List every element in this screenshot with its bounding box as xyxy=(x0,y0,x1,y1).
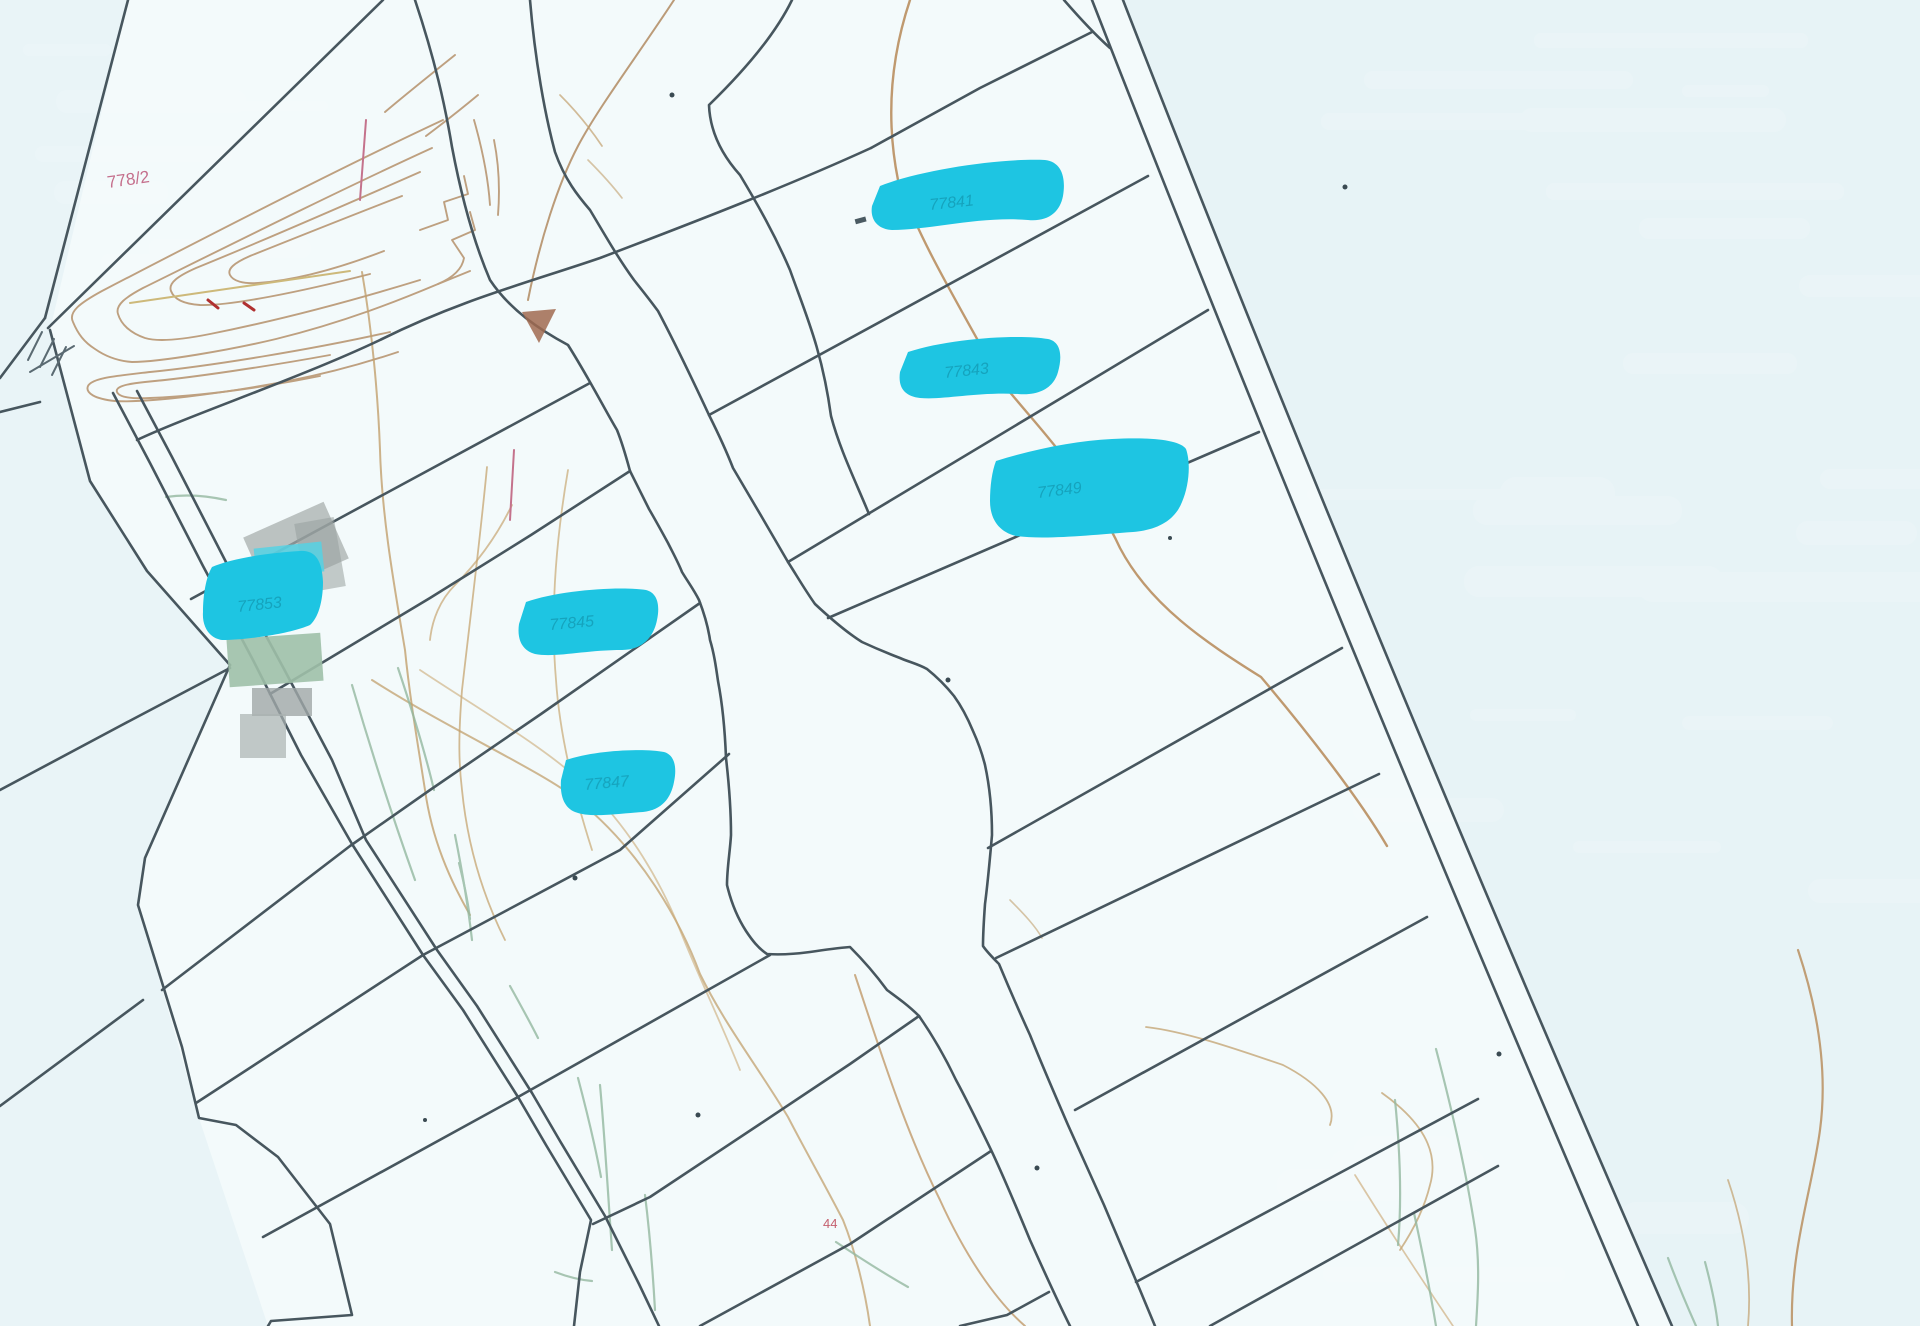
svg-text:44: 44 xyxy=(823,1216,837,1231)
